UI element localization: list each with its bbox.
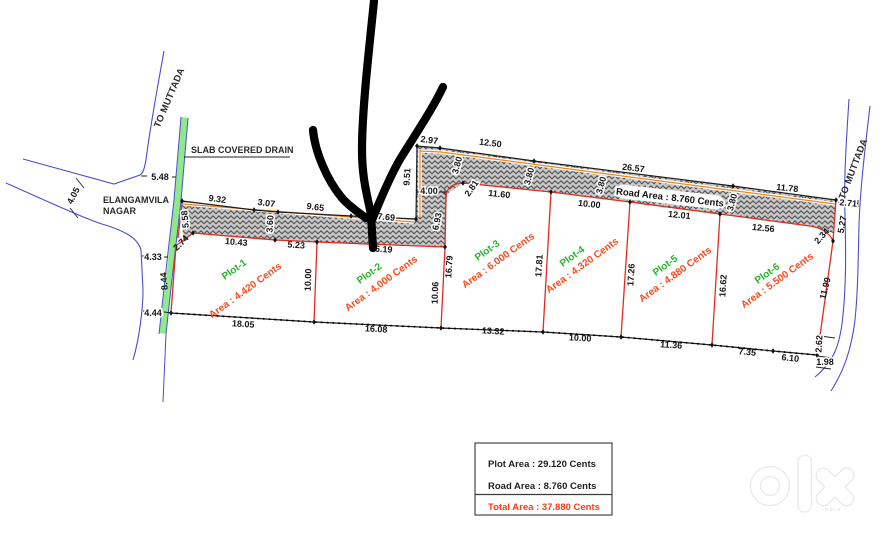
svg-text:4.33: 4.33 xyxy=(144,252,162,262)
svg-text:11.36: 11.36 xyxy=(660,339,683,351)
svg-text:18.05: 18.05 xyxy=(232,318,255,330)
svg-text:6.10: 6.10 xyxy=(781,352,799,364)
svg-text:5.58: 5.58 xyxy=(179,210,190,228)
svg-text:3.07: 3.07 xyxy=(257,197,276,209)
svg-text:8.44: 8.44 xyxy=(158,272,169,290)
svg-text:9.32: 9.32 xyxy=(208,193,227,205)
svg-text:9.65: 9.65 xyxy=(306,201,325,213)
svg-text:2.62: 2.62 xyxy=(814,335,825,353)
svg-text:2.97: 2.97 xyxy=(420,134,439,146)
svg-text:7.69: 7.69 xyxy=(377,211,395,223)
svg-text:16.79: 16.79 xyxy=(443,255,455,278)
svg-text:7.35: 7.35 xyxy=(738,346,756,357)
svg-text:INDIA: INDIA xyxy=(822,507,842,512)
svg-text:10.06: 10.06 xyxy=(430,281,441,304)
svg-text:9.51: 9.51 xyxy=(402,168,413,186)
svg-text:16.62: 16.62 xyxy=(717,274,729,297)
svg-text:10.00: 10.00 xyxy=(569,332,592,343)
svg-text:4.00: 4.00 xyxy=(420,186,438,196)
svg-text:Total Area : 37.880 Cents: Total Area : 37.880 Cents xyxy=(488,502,600,513)
svg-text:Plot Area : 29.120 Cents: Plot Area : 29.120 Cents xyxy=(488,459,596,470)
svg-text:1.98: 1.98 xyxy=(816,357,834,367)
svg-text:NAGAR: NAGAR xyxy=(103,206,136,216)
svg-text:10.00: 10.00 xyxy=(303,268,314,291)
svg-text:SLAB COVERED DRAIN: SLAB COVERED DRAIN xyxy=(191,145,294,155)
svg-text:ELANGAMVILA: ELANGAMVILA xyxy=(103,195,169,205)
svg-text:17.81: 17.81 xyxy=(533,254,545,277)
svg-text:10.43: 10.43 xyxy=(225,236,248,248)
svg-text:5.48: 5.48 xyxy=(151,172,169,182)
svg-text:Road Area : 8.760 Cents: Road Area : 8.760 Cents xyxy=(488,481,596,492)
svg-text:5.23: 5.23 xyxy=(287,239,305,250)
svg-text:17.26: 17.26 xyxy=(625,263,637,286)
svg-text:13.32: 13.32 xyxy=(482,325,505,336)
svg-text:3.60: 3.60 xyxy=(265,215,276,233)
svg-text:16.08: 16.08 xyxy=(365,323,388,334)
svg-text:4.44: 4.44 xyxy=(144,308,162,318)
